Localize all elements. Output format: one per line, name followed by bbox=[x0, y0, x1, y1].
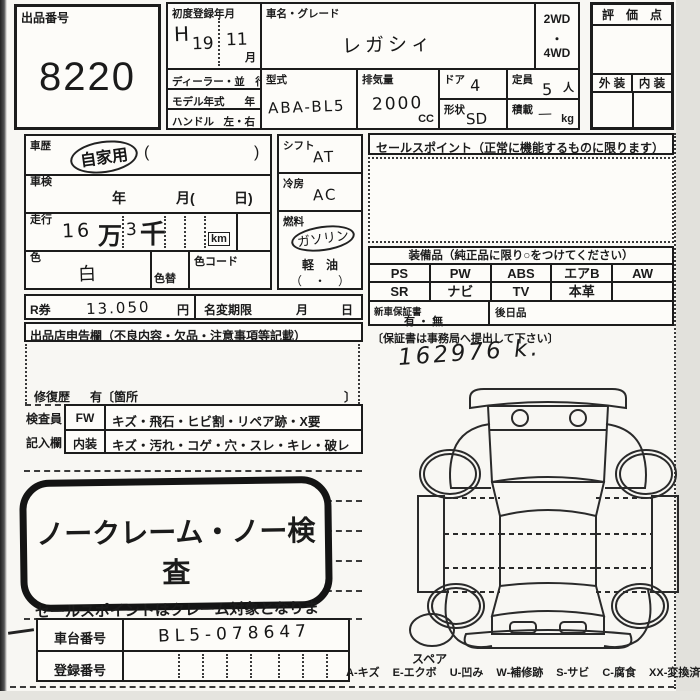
rear-wheel-left bbox=[428, 584, 484, 628]
headlight-washer-right bbox=[570, 410, 586, 426]
mileage-man: 万 bbox=[98, 216, 122, 251]
color-change-label: 色替 bbox=[154, 270, 176, 286]
inspector-row2-code: 内装 bbox=[66, 435, 104, 452]
sales-point-title: セールスポイント（正常に機能するものに限ります） bbox=[376, 139, 664, 156]
r-ticket-amount: 13.050 bbox=[86, 298, 151, 318]
r-ticket-label: R券 bbox=[30, 301, 51, 318]
evaluation-subheader: 外 装 内 装 bbox=[593, 73, 671, 93]
inspector-row1-label: 検査員 bbox=[26, 410, 62, 427]
equipment-row-2: SR ナビ TV 本革 bbox=[370, 283, 672, 301]
r-ticket-unit: 円 bbox=[177, 301, 189, 318]
legend-item: W-補修跡 bbox=[496, 667, 543, 679]
capacity-cell: 定員 5 人 bbox=[506, 68, 580, 100]
door-panel-right bbox=[652, 496, 678, 592]
warranty-options: 有 ・ 無 bbox=[404, 313, 443, 329]
equipment-item: ナビ bbox=[429, 283, 490, 301]
repair-history-label: 修復歴 bbox=[34, 388, 70, 405]
shape-value: SD bbox=[466, 110, 488, 129]
load-cell: 積載 — kg bbox=[506, 98, 580, 130]
plate-divider bbox=[278, 654, 280, 678]
mileage-label: 走行 bbox=[30, 215, 52, 226]
load-value: — bbox=[538, 106, 553, 122]
equipment-item: SR bbox=[370, 283, 429, 301]
sales-point-area bbox=[368, 157, 674, 243]
deadline-month: 月 bbox=[296, 301, 308, 318]
rear-fender-right bbox=[604, 590, 650, 647]
car-name-cell: 車名・グレード レガシィ bbox=[260, 2, 536, 70]
no-claim-line1: ノークレーム・ノー検査 bbox=[27, 509, 326, 593]
model-year-label: モデル年式 bbox=[172, 94, 225, 109]
equipment-item: エアB bbox=[550, 265, 611, 281]
mileage-unit: km bbox=[208, 232, 230, 246]
row-divider bbox=[26, 174, 270, 176]
mileage-second: 3 bbox=[126, 220, 138, 240]
chassis-plate-table: 車台番号 BL5-078647 登録番号 bbox=[36, 618, 350, 682]
plate-label: 登録番号 bbox=[38, 660, 122, 679]
displacement-unit: CC bbox=[418, 113, 434, 125]
inspector-row1-text: キズ・飛石・ヒビ割・リペア跡・X要 bbox=[112, 411, 320, 430]
shift-label: シフト bbox=[283, 138, 315, 153]
chassis-row-divider bbox=[38, 650, 348, 652]
inspection-month: 月( bbox=[176, 188, 195, 208]
color-divider2 bbox=[188, 250, 190, 290]
history-label: 車歴 bbox=[30, 138, 51, 153]
hood bbox=[488, 406, 608, 482]
mileage-sen: 千 bbox=[140, 214, 166, 251]
reg-month-unit: 月 bbox=[245, 49, 256, 65]
later-items-cell: 後日品 bbox=[488, 300, 674, 326]
handle-cell: ハンドル 左・右 bbox=[166, 108, 262, 130]
chassis-label: 車台番号 bbox=[38, 628, 122, 647]
drive-type-cell: 2WD ・ 4WD bbox=[534, 2, 580, 70]
drive-2wd: 2WD bbox=[536, 12, 578, 26]
lot-label: 出品番号 bbox=[21, 9, 69, 26]
later-items-label: 後日品 bbox=[495, 305, 527, 320]
interior-label: 内 装 bbox=[633, 75, 671, 91]
shift-value: AT bbox=[313, 148, 336, 167]
shape-label: 形状 bbox=[444, 102, 465, 117]
model-code-value: ABA-BL5 bbox=[268, 97, 346, 118]
scan-edge-left bbox=[0, 0, 7, 700]
capacity-value: 5 bbox=[542, 80, 553, 99]
reg-divider bbox=[218, 18, 220, 66]
legend-item: U-凹み bbox=[450, 667, 484, 679]
writing-line bbox=[24, 470, 362, 472]
displacement-label: 排気量 bbox=[362, 72, 394, 87]
color-code-label: 色コード bbox=[194, 253, 238, 269]
model-year-cell: モデル年式 年 bbox=[166, 88, 262, 110]
color-label: 色 bbox=[30, 253, 41, 264]
inspection-label: 車検 bbox=[30, 177, 52, 188]
sales-point-header: セールスポイント（正常に機能するものに限ります） bbox=[368, 133, 674, 155]
drive-separator: ・ bbox=[536, 30, 578, 47]
legend-item: XX-変換済 bbox=[649, 667, 700, 679]
inspection-year: 年 bbox=[112, 188, 126, 208]
headlight-washer-left bbox=[512, 410, 528, 426]
first-registration-label: 初度登録年月 bbox=[172, 6, 235, 21]
equipment-item: PS bbox=[370, 265, 429, 281]
history-paren-close: ) bbox=[254, 144, 259, 162]
bottom-dashed-line bbox=[10, 686, 674, 688]
mileage-end-divider bbox=[236, 212, 238, 250]
dealer-label: ディーラー・並 行 bbox=[172, 74, 266, 89]
load-unit: kg bbox=[561, 113, 574, 125]
model-code-cell: 型式 ABA-BL5 bbox=[260, 68, 358, 130]
deadline-label: 名変期限 bbox=[204, 301, 252, 318]
declaration-right-edge bbox=[358, 344, 360, 404]
legend-item: E-エクボ bbox=[393, 667, 437, 679]
equipment-item: ABS bbox=[490, 265, 551, 281]
mileage-first: 16 bbox=[62, 219, 93, 242]
plate-divider bbox=[302, 654, 304, 678]
displacement-cell: 排気量 2000 CC bbox=[356, 68, 440, 130]
equipment-item: 本革 bbox=[550, 283, 611, 301]
mileage-divider bbox=[164, 216, 166, 248]
plate-divider bbox=[326, 654, 328, 678]
equipment-item: PW bbox=[429, 265, 490, 281]
equipment-table: 装備品（純正品に限り○をつけてください） PS PW ABS エアB AW SR… bbox=[368, 246, 674, 302]
capacity-label: 定員 bbox=[512, 72, 533, 87]
color-divider bbox=[150, 250, 152, 290]
repair-history-text: 有〔箇所 bbox=[90, 388, 138, 405]
door-panel-left bbox=[418, 496, 444, 592]
aircon-cell: 冷房 AC bbox=[277, 172, 363, 212]
fuel-value-circled: ガソリン bbox=[291, 225, 356, 252]
car-name-label: 車名・グレード bbox=[266, 6, 340, 21]
rear-fender-left bbox=[446, 590, 492, 647]
plate-divider bbox=[202, 654, 204, 678]
handle-options: 左・右 bbox=[224, 114, 256, 129]
doors-cell: ドア 4 bbox=[438, 68, 508, 100]
color-value: 白 bbox=[78, 260, 97, 287]
history-value-circled: 自家用 bbox=[69, 140, 138, 174]
equipment-item: AW bbox=[611, 265, 672, 281]
dealer-cell: ディーラー・並 行 bbox=[166, 68, 262, 90]
lot-number-box: 出品番号 8220 bbox=[14, 4, 161, 130]
capacity-unit: 人 bbox=[563, 79, 574, 95]
declaration-header: 出品店申告欄（不良内容・欠品・注意事項等記載） bbox=[24, 322, 363, 342]
car-damage-diagram bbox=[398, 382, 698, 652]
first-registration-cell: 初度登録年月 H 19 11 月 bbox=[166, 2, 262, 70]
equipment-row-1: PS PW ABS エアB AW bbox=[370, 265, 672, 283]
lot-number-value: 8220 bbox=[17, 55, 158, 100]
evaluation-cell-divider bbox=[632, 93, 634, 127]
r-ticket-cell: R券 13.050 円 bbox=[24, 294, 196, 320]
evaluation-box: 評 価 点 外 装 内 装 bbox=[590, 2, 674, 130]
history-paren-open: ( bbox=[144, 144, 149, 162]
auction-sheet: 出品番号 8220 初度登録年月 H 19 11 月 車名・グレード レガシィ … bbox=[0, 0, 700, 700]
rear-wheel-right bbox=[612, 584, 668, 628]
rear-window bbox=[492, 583, 604, 616]
fuel-option: 軽 油 bbox=[279, 256, 361, 273]
drive-4wd: 4WD bbox=[536, 46, 578, 60]
damage-code-legend: A-キズ E-エクボ U-凹み W-補修跡 S-サビ C-腐食 XX-変換済 bbox=[346, 664, 694, 680]
legend-item: A-キズ bbox=[346, 667, 380, 679]
fuel-paren: （ ・ ） bbox=[279, 272, 361, 289]
model-code-label: 型式 bbox=[266, 72, 287, 87]
deadline-day: 日 bbox=[341, 301, 353, 318]
load-label: 積載 bbox=[512, 102, 533, 117]
reg-month-value: 11 bbox=[226, 30, 248, 51]
declaration-left-edge bbox=[25, 344, 27, 404]
legend-item: S-サビ bbox=[556, 667, 589, 679]
declaration-title: 出品店申告欄（不良内容・欠品・注意事項等記載） bbox=[30, 327, 306, 344]
name-change-deadline-cell: 名変期限 月 日 bbox=[194, 294, 363, 320]
repair-history-close: 〕 bbox=[344, 388, 356, 405]
mileage-divider bbox=[122, 216, 124, 248]
reg-era-value: H bbox=[174, 22, 190, 47]
inspection-day: 日) bbox=[234, 188, 253, 208]
exterior-label: 外 装 bbox=[593, 75, 633, 91]
plate-divider bbox=[226, 654, 228, 678]
handle-label: ハンドル bbox=[172, 114, 214, 129]
car-name-value: レガシィ bbox=[342, 28, 435, 58]
fuel-cell: 燃料 ガソリン 軽 油 （ ・ ） bbox=[277, 210, 363, 290]
inspector-table: FW キズ・飛石・ヒビ割・リペア跡・X要 内装 キズ・汚れ・コゲ・穴・スレ・キレ… bbox=[64, 404, 363, 454]
legend-item: C-腐食 bbox=[602, 667, 636, 679]
aircon-value: AC bbox=[313, 186, 338, 205]
chassis-col-divider bbox=[122, 620, 124, 680]
doors-label: ドア bbox=[444, 72, 465, 87]
doors-value: 4 bbox=[470, 76, 481, 95]
inspector-row2-text: キズ・汚れ・コゲ・穴・スレ・キレ・破レ bbox=[112, 435, 350, 454]
aircon-label: 冷房 bbox=[283, 176, 304, 191]
inspector-row1-code: FW bbox=[66, 411, 104, 425]
inspector-row2-label: 記入欄 bbox=[26, 434, 62, 451]
reg-year-value: 19 bbox=[192, 34, 214, 55]
mileage-divider bbox=[184, 216, 186, 248]
equipment-title: 装備品（純正品に限り○をつけてください） bbox=[370, 248, 672, 265]
shape-cell: 形状 SD bbox=[438, 98, 508, 130]
rear-bumper bbox=[465, 630, 632, 648]
shift-cell: シフト AT bbox=[277, 134, 363, 174]
vehicle-history-table: 車歴 自家用 ( ) 車検 年 月( 日) 走行 16 万 3 千 km 色 白… bbox=[24, 134, 272, 290]
scan-margin-bottom bbox=[0, 691, 700, 700]
chassis-value: BL5-078647 bbox=[158, 621, 312, 646]
inspector-col-divider bbox=[104, 406, 106, 452]
warranty-cell: 新車保証書 有 ・ 無 bbox=[368, 300, 490, 326]
plate-divider bbox=[178, 654, 180, 678]
equipment-item: TV bbox=[490, 283, 551, 301]
plate-divider bbox=[250, 654, 252, 678]
no-claim-stamp: ノークレーム・ノー検査 セールスポイントはクレーム対象となります bbox=[19, 476, 333, 612]
mileage-divider bbox=[204, 216, 206, 248]
displacement-value: 2000 bbox=[372, 93, 424, 115]
equipment-item bbox=[611, 283, 672, 301]
model-year-unit: 年 bbox=[245, 94, 256, 109]
evaluation-title: 評 価 点 bbox=[593, 5, 671, 26]
